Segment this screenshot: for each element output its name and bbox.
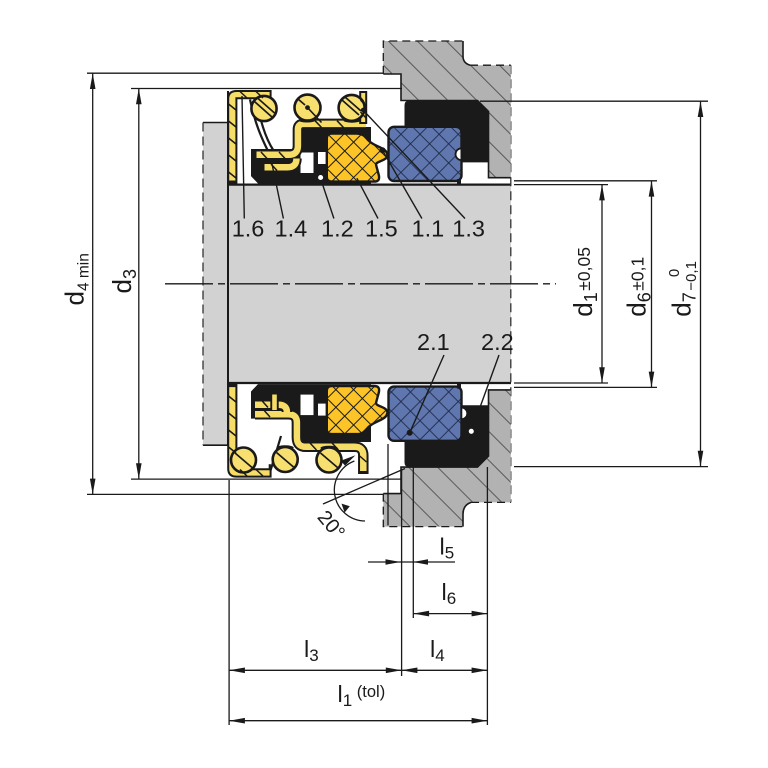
svg-text:1.5: 1.5 xyxy=(365,216,398,242)
svg-text:1.2: 1.2 xyxy=(321,216,354,242)
svg-text:1.1: 1.1 xyxy=(412,216,445,242)
svg-text:1.3: 1.3 xyxy=(452,216,485,242)
svg-text:1.4: 1.4 xyxy=(275,216,308,242)
svg-text:2.2: 2.2 xyxy=(481,329,514,355)
svg-text:1.6: 1.6 xyxy=(232,216,265,242)
svg-text:−0,1: −0,1 xyxy=(683,261,700,291)
svg-text:±0,1: ±0,1 xyxy=(628,257,648,291)
svg-text:±0,05: ±0,05 xyxy=(574,247,594,291)
svg-text:2.1: 2.1 xyxy=(417,329,450,355)
svg-text:0: 0 xyxy=(666,269,683,277)
